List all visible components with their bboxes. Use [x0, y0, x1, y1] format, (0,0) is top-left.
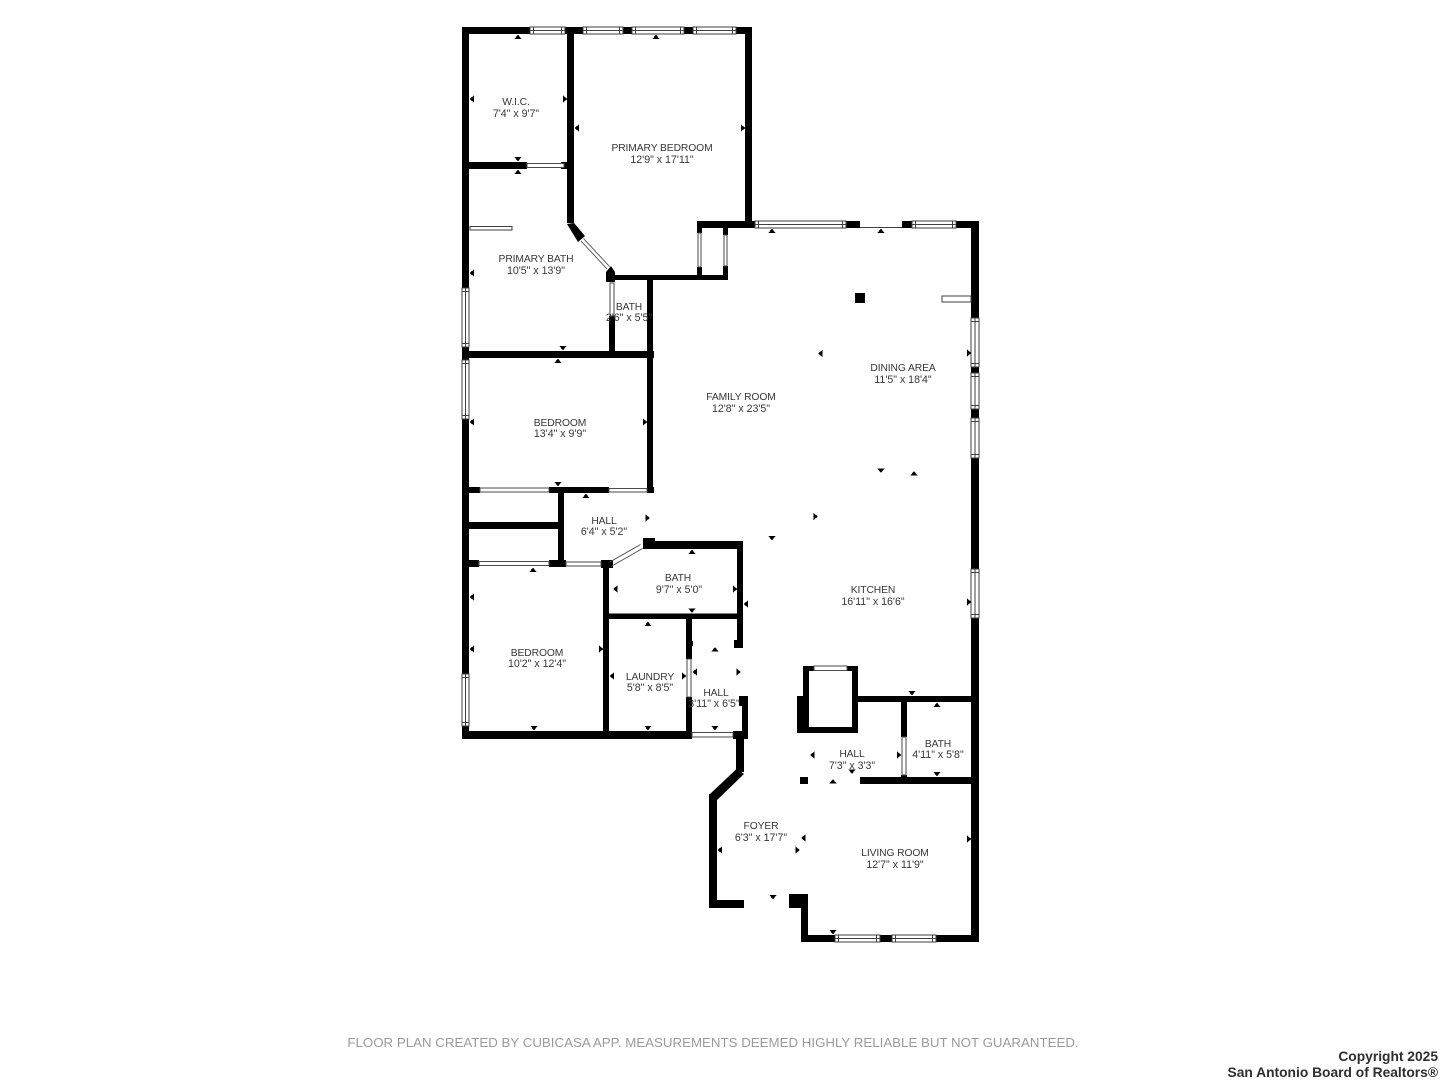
svg-text:12'8" x 23'5": 12'8" x 23'5"	[712, 403, 770, 415]
svg-text:3'11" x 6'5": 3'11" x 6'5"	[688, 698, 740, 710]
svg-text:6'3" x 17'7": 6'3" x 17'7"	[735, 832, 787, 844]
svg-text:PRIMARY BATH: PRIMARY BATH	[499, 254, 574, 265]
svg-text:11'5" x 18'4": 11'5" x 18'4"	[874, 374, 932, 386]
svg-text:San Antonio Board of Realtors®: San Antonio Board of Realtors®	[1228, 1065, 1438, 1080]
svg-text:PRIMARY BEDROOM: PRIMARY BEDROOM	[611, 143, 712, 154]
svg-text:2'6" x 5'5": 2'6" x 5'5"	[606, 312, 653, 324]
svg-text:12'7" x 11'9": 12'7" x 11'9"	[866, 859, 924, 871]
svg-text:FAMILY ROOM: FAMILY ROOM	[706, 392, 775, 403]
svg-text:7'3" x 3'3": 7'3" x 3'3"	[829, 760, 876, 772]
svg-text:LIVING ROOM: LIVING ROOM	[861, 848, 929, 859]
svg-text:W.I.C.: W.I.C.	[502, 97, 529, 108]
svg-text:BATH: BATH	[665, 573, 691, 584]
svg-text:5'8" x 8'5": 5'8" x 8'5"	[627, 682, 674, 694]
svg-text:Copyright 2025: Copyright 2025	[1338, 1049, 1438, 1064]
svg-text:KITCHEN: KITCHEN	[851, 585, 896, 596]
svg-text:16'11" x 16'6": 16'11" x 16'6"	[841, 596, 904, 608]
svg-text:HALL: HALL	[839, 749, 865, 760]
svg-text:6'4" x 5'2": 6'4" x 5'2"	[581, 526, 628, 538]
svg-text:FLOOR PLAN CREATED BY CUBICASA: FLOOR PLAN CREATED BY CUBICASA APP. MEAS…	[347, 1035, 1078, 1050]
svg-text:FOYER: FOYER	[744, 821, 779, 832]
svg-text:DINING AREA: DINING AREA	[870, 363, 936, 374]
svg-text:7'4" x 9'7": 7'4" x 9'7"	[493, 108, 540, 120]
svg-text:4'11" x 5'8": 4'11" x 5'8"	[912, 749, 964, 761]
svg-text:10'2" x 12'4": 10'2" x 12'4"	[508, 658, 566, 670]
svg-text:13'4" x 9'9": 13'4" x 9'9"	[534, 428, 586, 440]
svg-text:10'5" x 13'9": 10'5" x 13'9"	[507, 265, 565, 277]
svg-text:12'9" x 17'11": 12'9" x 17'11"	[630, 154, 693, 166]
svg-text:9'7" x 5'0": 9'7" x 5'0"	[656, 584, 703, 596]
